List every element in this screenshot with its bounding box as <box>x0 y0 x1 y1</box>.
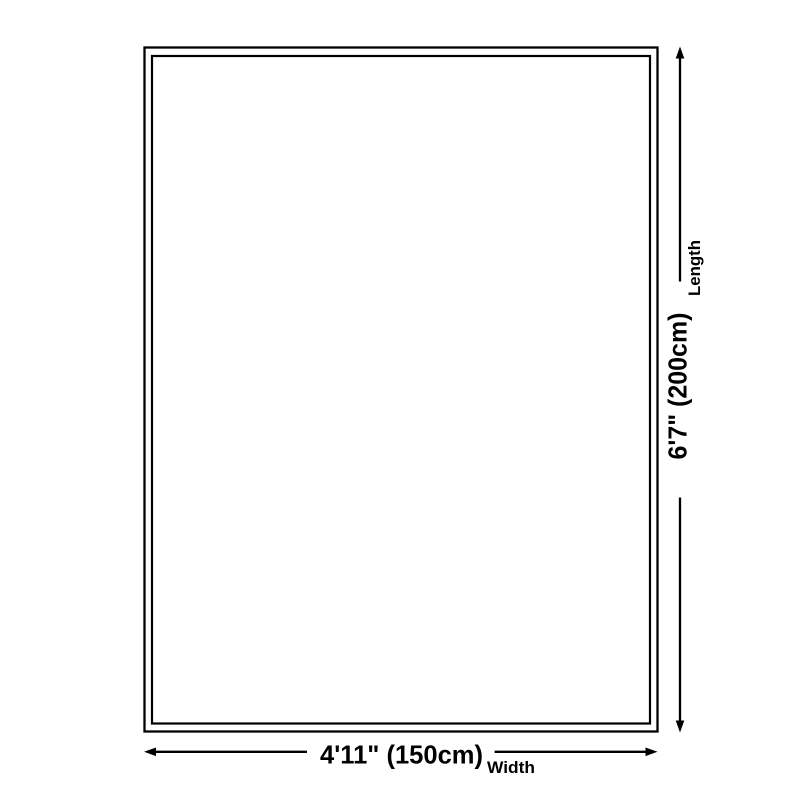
svg-text:Length: Length <box>686 240 704 296</box>
svg-text:4'11" (150cm): 4'11" (150cm) <box>320 740 483 770</box>
svg-text:Width: Width <box>487 759 535 777</box>
svg-text:6'7" (200cm): 6'7" (200cm) <box>663 313 693 460</box>
